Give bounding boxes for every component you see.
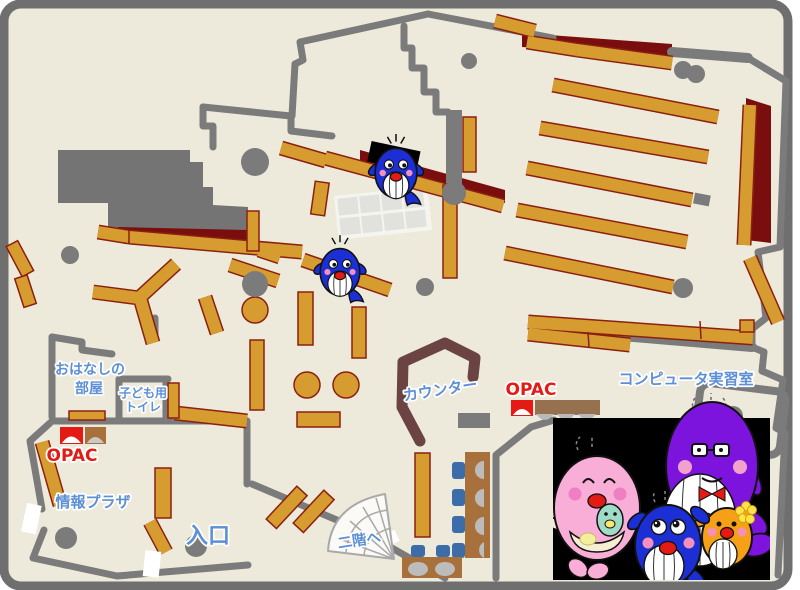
storytelling-room-label-line2: 部屋 [75, 380, 103, 397]
info-plaza-label: 情報プラザ [55, 493, 130, 511]
kids-toilet-label-line1: 子ども用 [119, 386, 167, 400]
whale-family-picture [547, 393, 777, 587]
storytelling-room-label-line1: おはなしの [55, 362, 125, 378]
opac-left-label: OPAC [47, 446, 98, 466]
kids-toilet-label-line2: トイレ [125, 400, 161, 414]
computer-room-label: コンピュータ実習室 [618, 370, 753, 388]
entrance-label: 入口 [186, 524, 230, 549]
floor-plan-svg: おはなしの 部屋 子ども用 トイレ OPAC 情報プラザ 入口 カウンター OP… [0, 0, 800, 590]
library-floor-map-page: おはなしの 部屋 子ども用 トイレ OPAC 情報プラザ 入口 カウンター OP… [0, 0, 800, 590]
opac-terminal-left [60, 427, 106, 444]
opac-center-label: OPAC [506, 380, 557, 400]
